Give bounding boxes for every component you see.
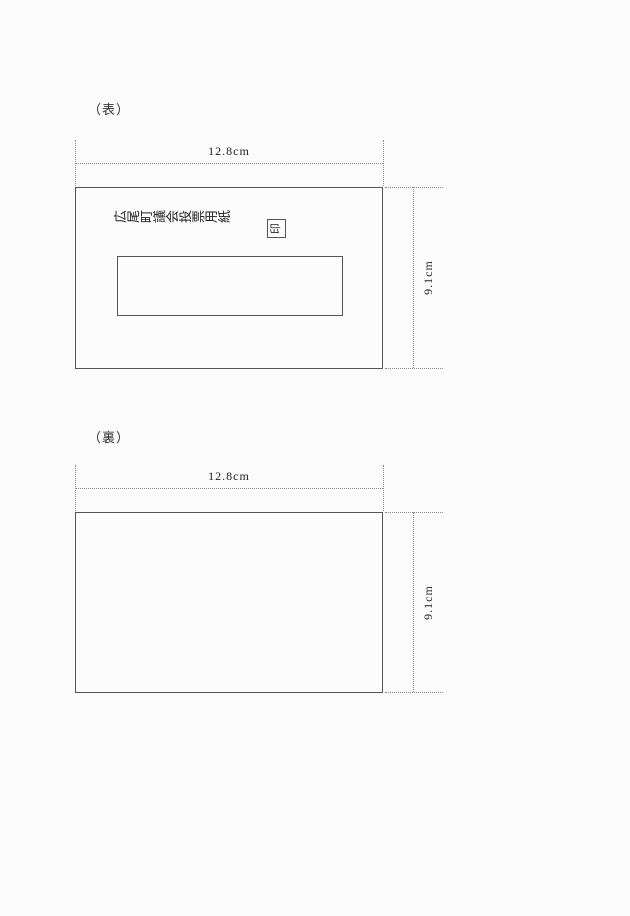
back-height-dimension-label: 9.1cm — [421, 585, 436, 620]
front-height-dimension-label: 9.1cm — [421, 260, 436, 295]
document-page: （表） 12.8cm 広尾町議会投票用紙 印 9.1cm （裏） 12.8cm … — [0, 0, 630, 916]
front-height-guide-bottom — [385, 368, 443, 369]
back-height-dimension: 9.1cm — [413, 512, 443, 692]
back-width-dimension-label: 12.8cm — [75, 469, 383, 484]
candidate-name-box — [117, 256, 343, 316]
front-width-guide-line — [75, 163, 383, 164]
seal-box: 印 — [267, 219, 286, 238]
back-height-guide-bottom — [385, 692, 443, 693]
ballot-title-vertical-text: 広尾町議会投票用紙 — [114, 209, 231, 224]
front-height-dimension: 9.1cm — [413, 187, 443, 368]
front-width-dimension-label: 12.8cm — [75, 144, 383, 159]
back-side-label: （裏） — [88, 427, 130, 446]
front-side-label: （表） — [88, 99, 130, 118]
front-width-guide-right — [383, 140, 384, 186]
back-width-guide-line — [75, 488, 383, 489]
back-ballot-rectangle — [75, 512, 383, 693]
back-width-guide-right — [383, 465, 384, 511]
front-ballot-rectangle: 広尾町議会投票用紙 印 — [75, 187, 383, 369]
seal-character: 印 — [271, 223, 282, 234]
